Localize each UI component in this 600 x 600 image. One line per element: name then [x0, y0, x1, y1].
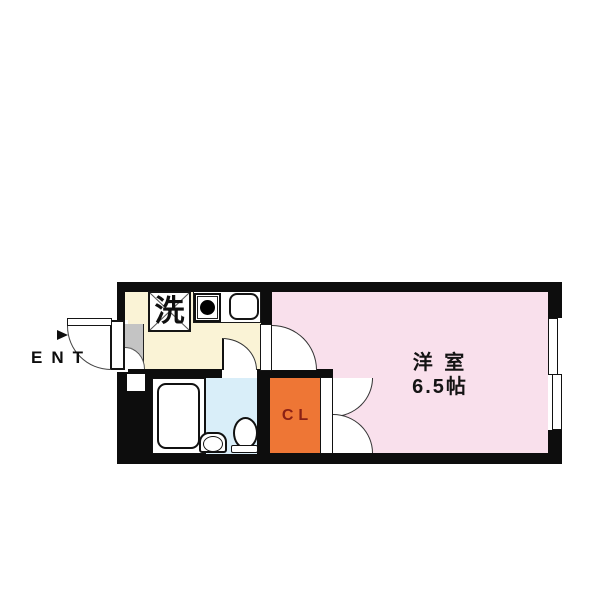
window-sash-upper: [548, 318, 558, 375]
kitchen-door-leaf: [260, 324, 272, 371]
washing-machine-icon: 洗: [148, 291, 191, 332]
window: [548, 318, 562, 430]
living-room-size: 6.5帖: [365, 376, 515, 398]
living-room-name: 洋 室: [365, 352, 515, 374]
window-sash-lower: [552, 374, 562, 430]
stove-icon: [194, 293, 221, 322]
closet-label: CL: [277, 408, 313, 424]
bathtub-icon: [157, 383, 200, 449]
living-room-label: 洋 室 6.5帖: [365, 352, 515, 398]
floorplan-canvas: 洗 ENT CL 洋 室 6.5帖: [0, 0, 600, 600]
entrance-arrow-icon: [57, 330, 68, 340]
closet-floor: CL: [270, 378, 320, 453]
toilet-tank-icon: [231, 445, 258, 453]
shoe-cabinet: [127, 374, 145, 391]
stove-burner-icon: [200, 300, 215, 315]
closet-door-panel: [320, 377, 333, 454]
entrance-door-frame: [110, 320, 125, 370]
laundry-label: 洗: [155, 297, 185, 327]
entrance-label: ENT: [31, 349, 92, 366]
kitchen-sink-icon: [229, 293, 259, 320]
entrance-door-leaf: [67, 318, 112, 326]
washbasin-bowl-icon: [203, 436, 223, 452]
